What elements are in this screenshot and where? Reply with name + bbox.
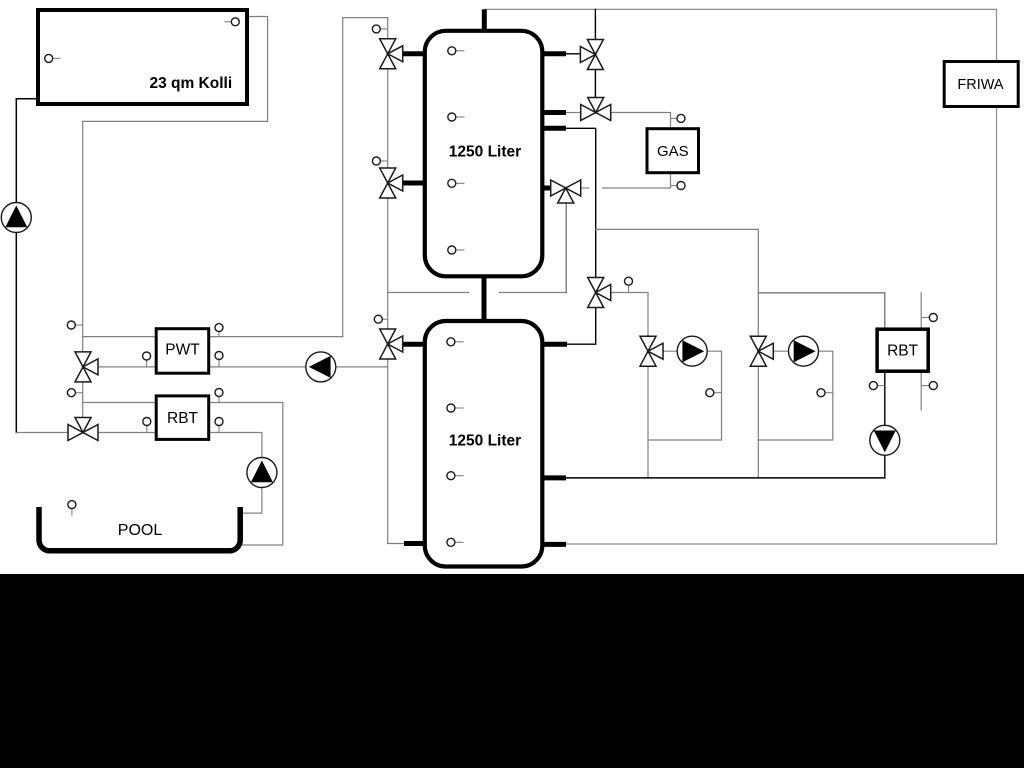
svg-text:1250 Liter: 1250 Liter [449,433,521,450]
svg-text:1250 Liter: 1250 Liter [449,144,521,161]
svg-text:PWT: PWT [165,342,200,359]
svg-text:RBT: RBT [887,343,919,360]
svg-text:GAS: GAS [657,143,689,160]
svg-text:FRIWA: FRIWA [957,77,1004,93]
svg-text:RBT: RBT [167,410,199,427]
svg-text:POOL: POOL [118,522,163,539]
svg-text:23 qm Kolli: 23 qm Kolli [149,75,232,92]
